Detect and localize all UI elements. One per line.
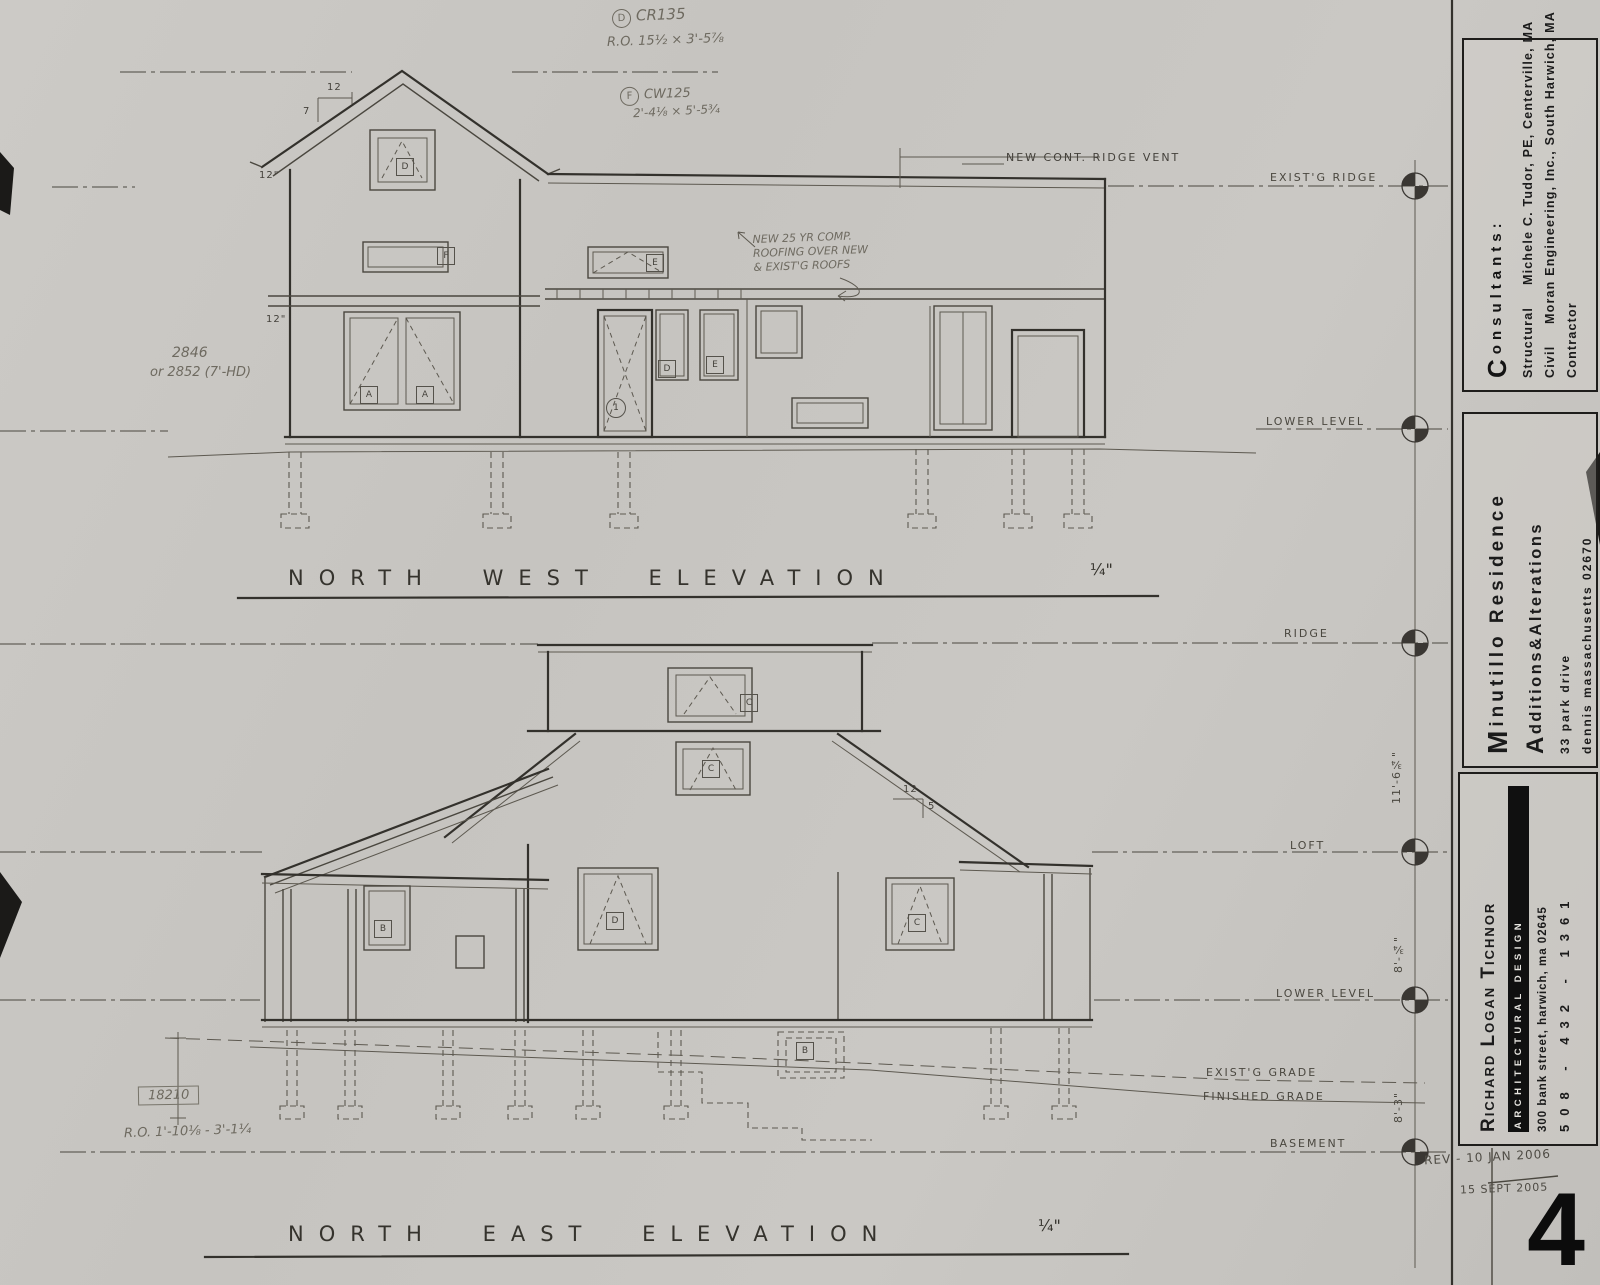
dim-loft-lower: 8'-¾" xyxy=(1392,893,1405,973)
pitch-rise-nw: 7 xyxy=(303,106,310,117)
window-tag: E xyxy=(646,254,664,272)
window-note-cr: DCR135 xyxy=(612,5,686,29)
window-tag: C xyxy=(702,760,720,778)
window-ref-bubble: D xyxy=(612,9,632,29)
level-label-exist-grade: EXIST'G GRADE xyxy=(1206,1066,1317,1079)
window-tag: C xyxy=(740,694,758,712)
consultants-heading: Consultants: xyxy=(1482,52,1513,378)
titleblock-consultants: Consultants: StructuralMichele C. Tudor,… xyxy=(1462,38,1598,392)
dim-eave-overhang: 12" xyxy=(259,170,279,181)
architect-phone: 508 - 432 - 1361 xyxy=(1557,786,1572,1132)
door-ref-note: 18210 xyxy=(138,1085,200,1105)
titleblock-architect: Richard Logan Tichnor Architectural Desi… xyxy=(1458,772,1598,1146)
project-address-1: 33 park drive xyxy=(1558,426,1572,754)
ridge-vent-note: NEW CONT. RIDGE VENT xyxy=(1006,151,1180,164)
window-tag: A xyxy=(416,386,434,404)
architect-content: Richard Logan Tichnor Architectural Desi… xyxy=(1460,774,1596,1144)
window-tag: D xyxy=(606,912,624,930)
project-content: Minutillo Residence Additions&Alteration… xyxy=(1464,414,1596,766)
level-label-lower-ne: LOWER LEVEL xyxy=(1276,987,1375,1000)
drawing-sheet: DCR135 R.O. 15½ × 3'-5⅞ FCW125 2'-4⅛ × 5… xyxy=(0,0,1600,1285)
level-lines xyxy=(0,72,1448,1152)
architect-name: Richard Logan Tichnor xyxy=(1478,786,1500,1132)
architect-address: 300 bank street, harwich, ma 02645 xyxy=(1537,786,1549,1132)
sheet-number: 4 xyxy=(1512,1178,1600,1282)
window-tag: B xyxy=(796,1042,814,1060)
dim-lower-basement: 8'-3" xyxy=(1392,1043,1405,1123)
dim-belt-offset: 12" xyxy=(266,314,286,325)
window-alt-note-2: or 2852 (7'-HD) xyxy=(150,365,251,380)
consultant-civil: CivilMoran Engineering, Inc., South Harw… xyxy=(1543,52,1557,378)
level-label-loft: LOFT xyxy=(1290,839,1325,852)
window-alt-note-1: 2846 xyxy=(172,345,208,361)
window-tag: B xyxy=(374,920,392,938)
level-label-ridge: RIDGE xyxy=(1284,627,1329,640)
window-tag: D xyxy=(396,158,414,176)
dim-ridge-loft: 11'-6¾" xyxy=(1390,688,1403,804)
project-subtitle: Additions&Alterations xyxy=(1522,426,1550,754)
titleblock-project: Minutillo Residence Additions&Alteration… xyxy=(1462,412,1598,768)
scale-northeast: ¼" xyxy=(1038,1216,1061,1235)
ne-elevation-linework xyxy=(165,645,1425,1257)
door-tag: 1 xyxy=(606,398,626,418)
window-tag: C xyxy=(908,914,926,932)
window-ref-bubble: F xyxy=(620,87,640,107)
pitch-run-ne: 12 xyxy=(903,784,918,795)
level-label-basement: BASEMENT xyxy=(1270,1137,1346,1150)
scale-northwest: ¼" xyxy=(1090,560,1113,579)
pitch-rise-ne: 5 xyxy=(928,801,935,812)
linework-layer xyxy=(0,0,1600,1285)
pitch-run-nw: 12 xyxy=(327,82,342,93)
project-address-2: dennis massachusetts 02670 xyxy=(1580,426,1594,754)
consultant-structural: StructuralMichele C. Tudor, PE, Centervi… xyxy=(1521,52,1535,378)
consultants-content: Consultants: StructuralMichele C. Tudor,… xyxy=(1464,40,1596,390)
consultant-contractor: Contractor xyxy=(1565,52,1579,378)
title-northeast-elevation: NORTH EAST ELEVATION xyxy=(288,1222,892,1246)
window-tag: E xyxy=(706,356,724,374)
level-label-exist-ridge: EXIST'G RIDGE xyxy=(1270,171,1377,184)
level-label-finished-grade: FINISHED GRADE xyxy=(1203,1090,1325,1103)
window-tag: F xyxy=(437,247,455,265)
dimension-string xyxy=(1402,160,1428,1268)
window-tag: A xyxy=(360,386,378,404)
window-tag: D xyxy=(658,360,676,378)
project-name: Minutillo Residence xyxy=(1482,426,1514,754)
roofing-note: NEW 25 YR COMP. ROOFING OVER NEW & EXIST… xyxy=(752,229,869,275)
title-northwest-elevation: NORTH WEST ELEVATION xyxy=(288,566,899,590)
level-label-lower-nw: LOWER LEVEL xyxy=(1266,415,1365,428)
architect-firm-banner: Architectural Design xyxy=(1508,786,1529,1132)
